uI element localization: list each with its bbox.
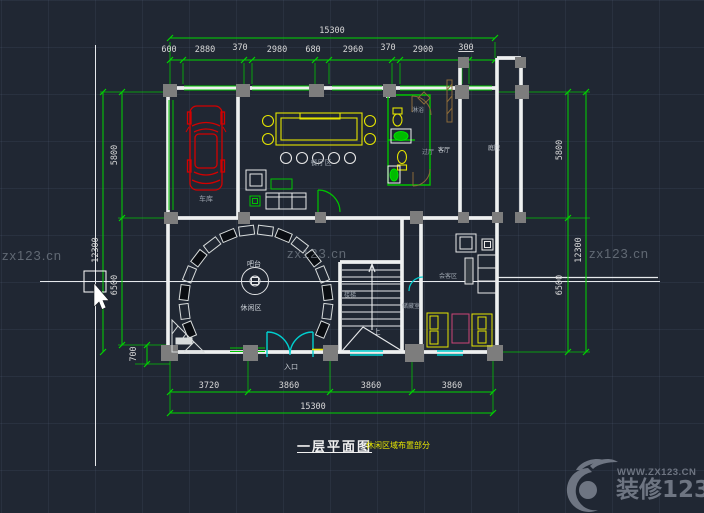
label-stairs: 楼梯 — [344, 293, 356, 299]
toilet-icon — [393, 108, 402, 126]
cursor — [84, 271, 109, 310]
drawing-title: 一层平面图 — [297, 436, 372, 455]
sink-icon — [391, 129, 411, 143]
dim-right-lower: 6500 — [556, 275, 565, 295]
sofa-set — [246, 170, 306, 209]
dining-door — [318, 190, 340, 212]
dim-right-total: 12300 — [575, 237, 584, 263]
cad-viewport[interactable]: 15300 600 2880 370 2980 680 2960 370 290… — [0, 0, 704, 513]
dim-top-total: 15300 — [319, 27, 345, 36]
dim-top-4: 680 — [305, 46, 320, 55]
construction-lines — [40, 45, 660, 466]
dim-bottom-2: 3860 — [361, 382, 381, 391]
dim-left-step: 700 — [130, 346, 139, 361]
logo-brand-name: 装修123 — [616, 479, 704, 502]
stairs — [342, 264, 402, 351]
tea-table — [452, 314, 469, 343]
dim-bottom-total: 15300 — [300, 403, 326, 412]
label-meeting: 会客区 — [439, 274, 457, 280]
bath-doors — [412, 80, 452, 186]
label-leisure: 休闲区 — [241, 305, 262, 312]
walls — [168, 58, 521, 352]
drawing-title-note: 休闲区域布置部分 — [366, 440, 430, 451]
label-bar: 吧台 — [247, 261, 261, 268]
watermark-left: zx123.cn — [2, 248, 62, 263]
car — [186, 106, 226, 190]
bidet-icon — [388, 166, 400, 183]
dim-left-lower: 6500 — [111, 275, 120, 295]
dim-bottom-3: 3860 — [442, 382, 462, 391]
meeting-room-furniture — [427, 234, 496, 347]
brand-logo-icon — [567, 459, 618, 512]
dim-left-total: 12300 — [92, 237, 101, 263]
label-hall: 过厅 — [422, 150, 434, 156]
dim-top-5: 2960 — [343, 46, 363, 55]
dim-top-3: 2980 — [267, 46, 287, 55]
yellow-sofas — [427, 313, 492, 347]
dim-top-0: 600 — [161, 46, 176, 55]
dim-top-2: 370 — [232, 44, 247, 53]
mouse-arrow-icon — [94, 283, 109, 310]
dining-table — [263, 113, 376, 164]
label-up: 上 — [374, 329, 381, 336]
dim-right-upper: 5800 — [556, 140, 565, 160]
dim-left-upper: 5800 — [111, 145, 120, 165]
label-dining: 餐厅区 — [311, 160, 332, 167]
dim-bottom-1: 3860 — [279, 382, 299, 391]
label-entrance: 入口 — [284, 364, 298, 371]
label-shower: 淋浴 — [412, 108, 424, 114]
watermark-center: zx123.cn — [287, 246, 347, 261]
label-garage: 车库 — [199, 196, 213, 203]
dim-top-1: 2880 — [195, 46, 215, 55]
toilet2-icon — [398, 151, 407, 171]
label-storage: 储藏室 — [402, 304, 420, 310]
dim-top-6: 370 — [380, 44, 395, 53]
dim-top-8: 300 — [458, 44, 473, 53]
dim-top-7: 2900 — [413, 46, 433, 55]
dim-bottom-0: 3720 — [199, 382, 219, 391]
label-yard: 庭院 — [488, 146, 500, 152]
bathroom — [388, 80, 452, 186]
watermark-right: zx123.cn — [589, 246, 649, 261]
columns — [161, 57, 529, 362]
label-living: 客厅 — [438, 148, 450, 154]
